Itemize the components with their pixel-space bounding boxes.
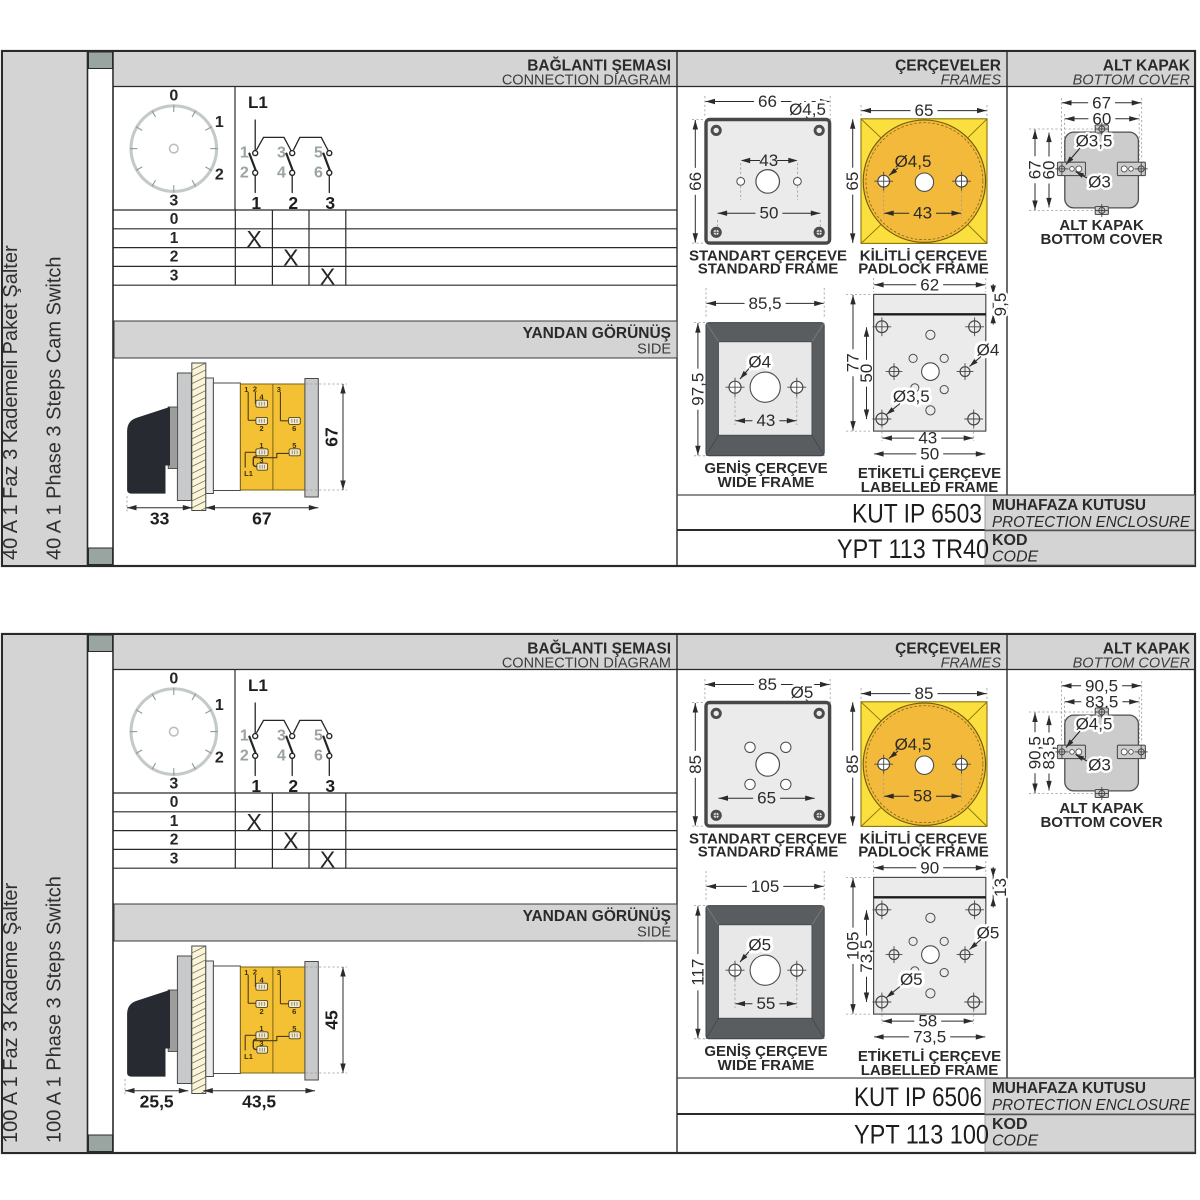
svg-text:FRAMES: FRAMES xyxy=(941,656,1002,672)
svg-text:43: 43 xyxy=(913,204,932,223)
svg-text:3: 3 xyxy=(277,385,281,394)
svg-text:3: 3 xyxy=(277,145,286,162)
svg-text:KUT IP 6503: KUT IP 6503 xyxy=(852,499,982,529)
svg-text:6: 6 xyxy=(292,424,296,433)
svg-text:KUT IP 6506: KUT IP 6506 xyxy=(854,1082,982,1112)
svg-text:9,5: 9,5 xyxy=(991,293,1010,317)
svg-text:83,5: 83,5 xyxy=(1040,736,1059,769)
svg-text:55: 55 xyxy=(756,994,775,1013)
svg-text:3: 3 xyxy=(170,851,179,868)
svg-text:CODE: CODE xyxy=(992,1133,1039,1150)
svg-text:1: 1 xyxy=(170,813,179,830)
svg-text:2: 2 xyxy=(170,832,179,849)
svg-text:Ø5: Ø5 xyxy=(791,683,814,702)
svg-text:85,5: 85,5 xyxy=(749,294,782,313)
svg-text:1: 1 xyxy=(244,968,248,977)
svg-text:PROTECTION ENCLOSURE: PROTECTION ENCLOSURE xyxy=(992,1097,1190,1114)
svg-text:X: X xyxy=(283,245,298,271)
svg-text:Ø5: Ø5 xyxy=(977,923,1000,942)
svg-text:67: 67 xyxy=(322,427,342,446)
svg-text:3: 3 xyxy=(277,968,281,977)
svg-text:58: 58 xyxy=(913,787,932,806)
svg-text:Ø4,5: Ø4,5 xyxy=(895,152,932,171)
svg-text:WIDE FRAME: WIDE FRAME xyxy=(718,474,815,491)
svg-text:6: 6 xyxy=(314,747,323,764)
svg-text:X: X xyxy=(283,828,298,854)
svg-text:73,5: 73,5 xyxy=(857,940,876,973)
svg-text:1: 1 xyxy=(170,230,179,247)
svg-text:L1: L1 xyxy=(248,676,268,695)
svg-text:3: 3 xyxy=(169,776,178,793)
svg-text:1: 1 xyxy=(240,728,249,745)
svg-text:YPT 113 100: YPT 113 100 xyxy=(854,1120,989,1150)
svg-text:STANDARD FRAME: STANDARD FRAME xyxy=(698,261,839,278)
svg-text:73,5: 73,5 xyxy=(913,1027,946,1046)
svg-text:YPT 113 TR40: YPT 113 TR40 xyxy=(837,534,989,564)
svg-text:0: 0 xyxy=(169,671,178,688)
svg-text:1: 1 xyxy=(240,145,249,162)
svg-text:MUHAFAZA KUTUSU: MUHAFAZA KUTUSU xyxy=(992,497,1146,514)
svg-text:2: 2 xyxy=(253,385,257,394)
svg-text:5: 5 xyxy=(292,1024,296,1033)
svg-text:5: 5 xyxy=(292,441,296,450)
svg-text:Ø5: Ø5 xyxy=(900,970,923,989)
svg-text:Ø3,5: Ø3,5 xyxy=(893,387,930,406)
svg-text:5: 5 xyxy=(314,145,323,162)
svg-text:100 A 1 Phase 3 Steps Switch: 100 A 1 Phase 3 Steps Switch xyxy=(44,876,66,1143)
svg-text:4: 4 xyxy=(277,164,286,181)
svg-text:50: 50 xyxy=(920,444,939,463)
svg-text:Ø4,5: Ø4,5 xyxy=(789,100,826,119)
svg-text:Ø4,5: Ø4,5 xyxy=(895,735,932,754)
svg-text:3: 3 xyxy=(169,193,178,210)
svg-text:LABELLED FRAME: LABELLED FRAME xyxy=(861,479,999,496)
svg-text:FRAMES: FRAMES xyxy=(941,73,1002,89)
svg-text:2: 2 xyxy=(240,747,249,764)
svg-text:13: 13 xyxy=(991,878,1010,897)
svg-text:50: 50 xyxy=(857,364,876,383)
svg-text:66: 66 xyxy=(686,172,705,191)
svg-text:BOTTOM COVER: BOTTOM COVER xyxy=(1073,656,1191,672)
svg-text:65: 65 xyxy=(757,789,776,808)
svg-text:Ø4: Ø4 xyxy=(748,352,771,371)
svg-text:X: X xyxy=(320,847,335,873)
svg-text:43,5: 43,5 xyxy=(242,1092,276,1112)
svg-text:60: 60 xyxy=(1040,161,1059,180)
svg-text:3: 3 xyxy=(259,456,263,465)
svg-text:L1: L1 xyxy=(244,1052,253,1061)
svg-text:CONNECTION DIAGRAM: CONNECTION DIAGRAM xyxy=(502,73,671,89)
svg-text:5: 5 xyxy=(314,728,323,745)
svg-text:WIDE FRAME: WIDE FRAME xyxy=(718,1057,815,1074)
svg-text:SIDE: SIDE xyxy=(637,925,671,941)
svg-text:Ø3,5: Ø3,5 xyxy=(1076,132,1113,151)
svg-text:STANDARD FRAME: STANDARD FRAME xyxy=(698,844,839,861)
svg-text:2: 2 xyxy=(260,424,264,433)
svg-text:0: 0 xyxy=(170,211,179,228)
svg-text:0: 0 xyxy=(170,794,179,811)
svg-text:43: 43 xyxy=(759,151,778,170)
svg-text:L1: L1 xyxy=(244,469,253,478)
svg-text:67: 67 xyxy=(252,509,271,529)
svg-text:3: 3 xyxy=(259,1039,263,1048)
svg-text:6: 6 xyxy=(314,164,323,181)
svg-text:85: 85 xyxy=(915,684,934,703)
svg-text:25,5: 25,5 xyxy=(140,1092,174,1112)
svg-text:40 A 1 Phase 3 Steps Cam Switc: 40 A 1 Phase 3 Steps Cam Switch xyxy=(44,256,66,560)
svg-text:1: 1 xyxy=(215,697,224,714)
svg-text:PROTECTION ENCLOSURE: PROTECTION ENCLOSURE xyxy=(992,514,1190,531)
svg-text:65: 65 xyxy=(915,101,934,120)
svg-text:X: X xyxy=(247,809,262,835)
svg-text:YANDAN GÖRÜNÜŞ: YANDAN GÖRÜNÜŞ xyxy=(523,325,671,342)
svg-text:62: 62 xyxy=(920,275,939,294)
svg-text:100 A 1 Faz 3 Kademe Şalter: 100 A 1 Faz 3 Kademe Şalter xyxy=(0,882,22,1143)
svg-text:66: 66 xyxy=(758,92,777,111)
svg-text:117: 117 xyxy=(688,959,707,986)
svg-text:33: 33 xyxy=(150,509,170,529)
svg-text:0: 0 xyxy=(169,88,178,105)
svg-text:4: 4 xyxy=(277,747,286,764)
svg-text:Ø3: Ø3 xyxy=(1088,172,1111,191)
svg-text:2: 2 xyxy=(170,249,179,266)
svg-text:1: 1 xyxy=(259,441,263,450)
svg-text:2: 2 xyxy=(253,968,257,977)
svg-text:CODE: CODE xyxy=(992,549,1039,566)
svg-text:2: 2 xyxy=(260,1007,264,1016)
svg-text:YANDAN GÖRÜNÜŞ: YANDAN GÖRÜNÜŞ xyxy=(523,908,671,925)
svg-text:43: 43 xyxy=(756,411,775,430)
svg-text:85: 85 xyxy=(758,675,777,694)
svg-text:BOTTOM COVER: BOTTOM COVER xyxy=(1040,231,1162,248)
svg-text:65: 65 xyxy=(843,172,862,191)
svg-text:2: 2 xyxy=(240,164,249,181)
svg-text:97,5: 97,5 xyxy=(688,373,707,406)
svg-text:105: 105 xyxy=(751,877,779,896)
svg-text:SIDE: SIDE xyxy=(637,342,671,358)
svg-text:X: X xyxy=(320,264,335,290)
svg-text:85: 85 xyxy=(843,755,862,774)
svg-text:X: X xyxy=(247,226,262,252)
svg-text:MUHAFAZA KUTUSU: MUHAFAZA KUTUSU xyxy=(992,1080,1146,1097)
svg-text:LABELLED FRAME: LABELLED FRAME xyxy=(861,1062,999,1079)
svg-text:1: 1 xyxy=(259,1024,263,1033)
svg-text:L1: L1 xyxy=(248,93,268,112)
svg-text:1: 1 xyxy=(215,114,224,131)
svg-text:Ø5: Ø5 xyxy=(748,935,771,954)
svg-text:1: 1 xyxy=(244,385,248,394)
svg-text:50: 50 xyxy=(759,204,778,223)
svg-text:Ø4,5: Ø4,5 xyxy=(1076,715,1113,734)
svg-text:40 A 1 Faz 3 Kademeli Paket Şa: 40 A 1 Faz 3 Kademeli Paket Şalter xyxy=(0,245,22,560)
svg-text:85: 85 xyxy=(686,755,705,774)
svg-text:2: 2 xyxy=(215,166,224,183)
svg-text:3: 3 xyxy=(277,728,286,745)
svg-text:Ø3: Ø3 xyxy=(1088,755,1111,774)
svg-text:BOTTOM COVER: BOTTOM COVER xyxy=(1040,814,1162,831)
svg-text:BOTTOM COVER: BOTTOM COVER xyxy=(1073,73,1191,89)
svg-text:KOD: KOD xyxy=(992,1116,1028,1133)
svg-text:CONNECTION DIAGRAM: CONNECTION DIAGRAM xyxy=(502,656,671,672)
svg-text:Ø4: Ø4 xyxy=(977,340,1000,359)
svg-text:2: 2 xyxy=(215,749,224,766)
svg-text:3: 3 xyxy=(170,268,179,285)
svg-text:45: 45 xyxy=(322,1010,342,1030)
svg-text:6: 6 xyxy=(292,1007,296,1016)
svg-text:90: 90 xyxy=(920,858,939,877)
svg-text:KOD: KOD xyxy=(992,532,1028,549)
